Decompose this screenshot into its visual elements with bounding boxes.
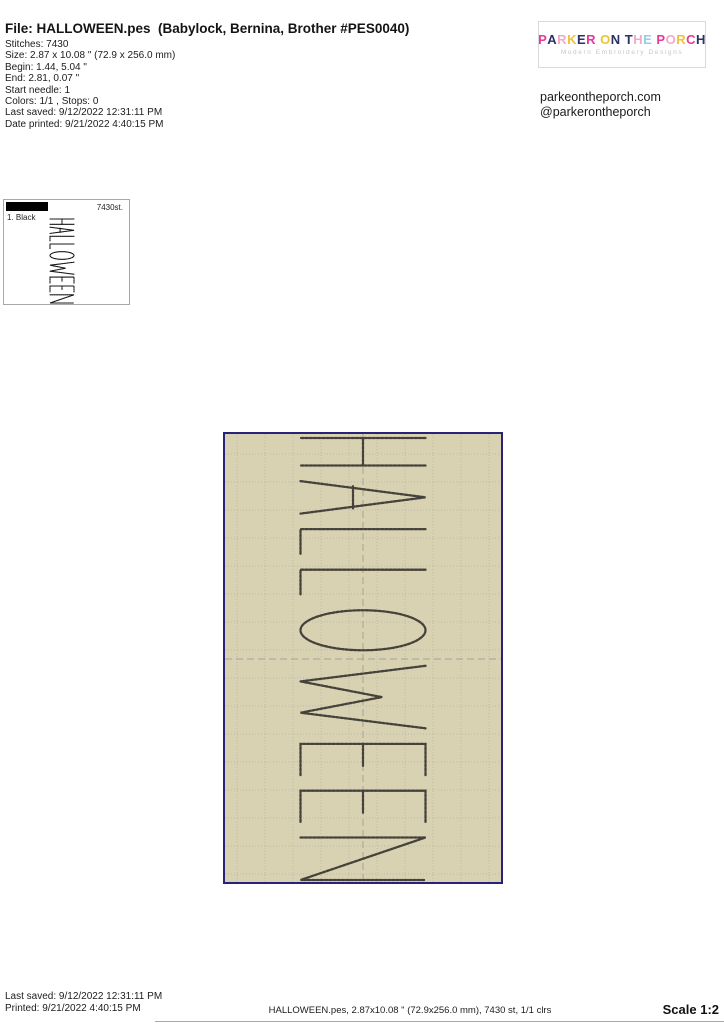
footer-summary: HALLOWEEN.pes, 2.87x10.08 " (72.9x256.0 … bbox=[250, 1005, 570, 1016]
logo-letter: O bbox=[666, 33, 677, 47]
detail-last-saved: Last saved: 9/12/2022 12:31:11 PM bbox=[5, 107, 409, 118]
detail-stitches: Stitches: 7430 bbox=[5, 39, 409, 50]
footer-last-saved: Last saved: 9/12/2022 12:31:11 PM bbox=[5, 991, 162, 1003]
logo-letter: T bbox=[625, 33, 633, 47]
brand-links: parkeontheporch.com @parkerontheporch bbox=[540, 90, 661, 120]
detail-begin: Begin: 1.44, 5.04 " bbox=[5, 62, 409, 73]
logo-letter: E bbox=[643, 33, 652, 47]
brand-logo: PARKER ON THE PORCH Modern Embroidery De… bbox=[538, 21, 706, 68]
detail-end: End: 2.81, 0.07 " bbox=[5, 73, 409, 84]
design-thumbnail bbox=[4, 200, 129, 304]
detail-start-needle: Start needle: 1 bbox=[5, 85, 409, 96]
design-preview-canvas bbox=[225, 434, 501, 882]
brand-wordmark: PARKER ON THE PORCH bbox=[538, 33, 706, 47]
logo-letter: E bbox=[577, 33, 586, 47]
brand-website: parkeontheporch.com bbox=[540, 90, 661, 105]
footer-printed: Printed: 9/21/2022 4:40:15 PM bbox=[5, 1003, 162, 1015]
detail-size: Size: 2.87 x 10.08 " (72.9 x 256.0 mm) bbox=[5, 50, 409, 61]
detail-date-printed: Date printed: 9/21/2022 4:40:15 PM bbox=[5, 119, 409, 130]
logo-letter: R bbox=[557, 33, 567, 47]
logo-letter: H bbox=[696, 33, 706, 47]
logo-letter: H bbox=[633, 33, 643, 47]
logo-letter: A bbox=[547, 33, 557, 47]
printout-page: File: HALLOWEEN.pes (Babylock, Bernina, … bbox=[0, 0, 724, 1024]
footer-scale: Scale 1:2 bbox=[663, 1002, 719, 1017]
logo-letter: P bbox=[656, 33, 665, 47]
color-sequence-panel: 1. Black 7430st. bbox=[3, 199, 130, 305]
logo-letter: C bbox=[686, 33, 696, 47]
file-title: File: HALLOWEEN.pes (Babylock, Bernina, … bbox=[5, 21, 409, 36]
brand-tagline: Modern Embroidery Designs bbox=[561, 49, 683, 56]
footer-divider bbox=[155, 1021, 724, 1022]
logo-letter: O bbox=[600, 33, 611, 47]
logo-letter: R bbox=[586, 33, 596, 47]
design-preview bbox=[223, 432, 503, 884]
footer-timestamps: Last saved: 9/12/2022 12:31:11 PM Printe… bbox=[5, 991, 162, 1015]
brand-social-handle: @parkerontheporch bbox=[540, 105, 661, 120]
file-details: Stitches: 7430 Size: 2.87 x 10.08 " (72.… bbox=[5, 39, 409, 130]
logo-letter: P bbox=[538, 33, 547, 47]
detail-colors: Colors: 1/1 , Stops: 0 bbox=[5, 96, 409, 107]
file-info-header: File: HALLOWEEN.pes (Babylock, Bernina, … bbox=[5, 21, 409, 130]
logo-letter: K bbox=[567, 33, 577, 47]
logo-letter: N bbox=[611, 33, 621, 47]
logo-letter: R bbox=[676, 33, 686, 47]
